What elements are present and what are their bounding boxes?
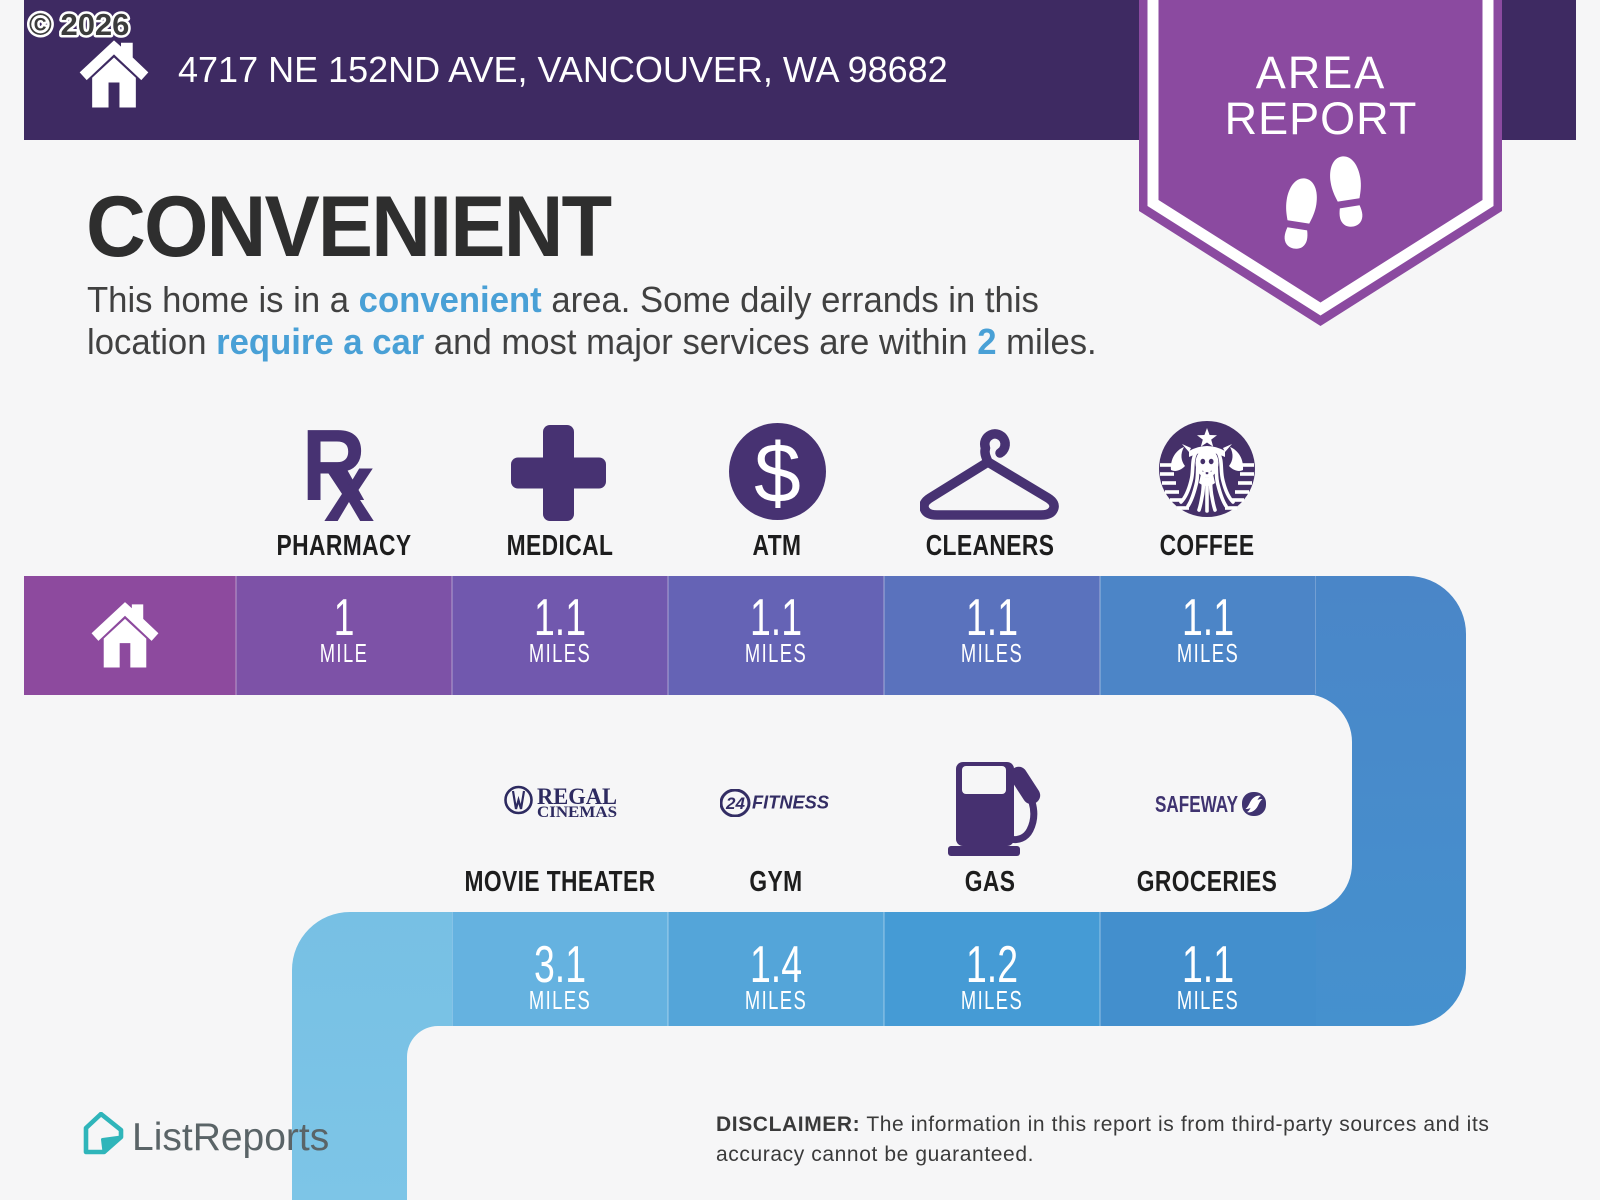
svg-text:FITNESS: FITNESS: [752, 792, 830, 813]
svg-text:24: 24: [725, 794, 745, 813]
svg-text:SAFEWAY: SAFEWAY: [1155, 791, 1238, 817]
svg-text:CINEMAS: CINEMAS: [537, 804, 617, 819]
